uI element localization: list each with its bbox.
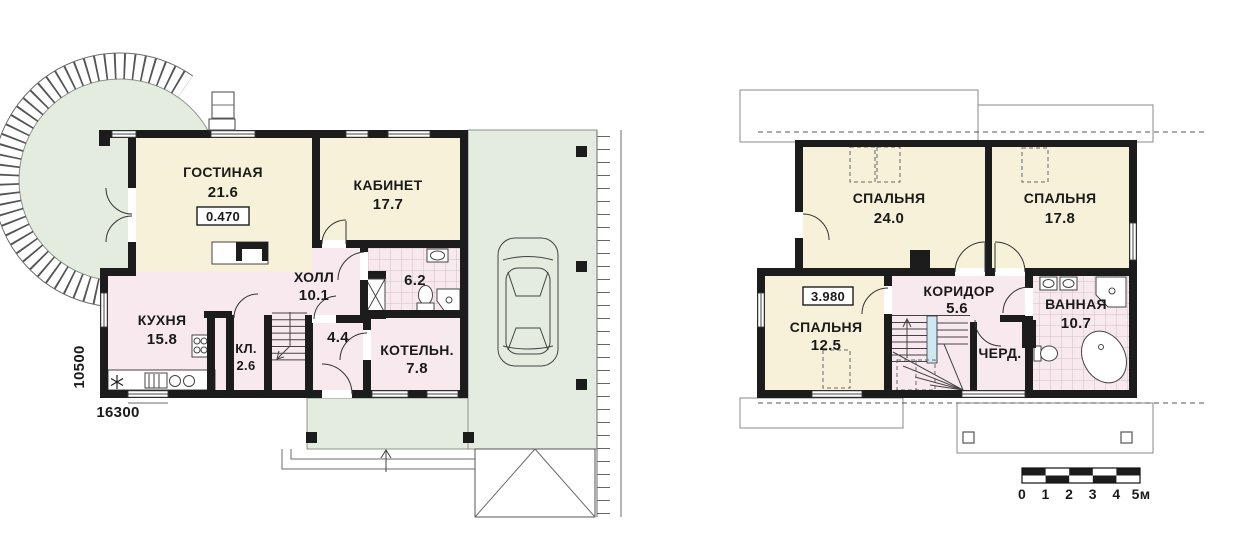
floor-plan-sheet: ГОСТИНАЯ 21.6 0.470 КАБИНЕТ 17.7 ХОЛЛ 10… <box>0 0 1250 560</box>
chimney-mark <box>1121 432 1132 443</box>
room-label-koridor: КОРИДОР <box>923 283 994 299</box>
room-label-spalnya3: СПАЛЬНЯ <box>790 319 863 335</box>
second-floor-plan: СПАЛЬНЯ 24.0 СПАЛЬНЯ 17.8 3.980 СПАЛЬНЯ … <box>740 90 1208 453</box>
scale-label-3: 3 <box>1089 486 1097 502</box>
room-label-vannaya: ВАННАЯ <box>1045 296 1107 312</box>
chimney-outline <box>209 119 235 130</box>
veranda-floor <box>307 398 468 449</box>
room-area-sanuzel: 6.2 <box>404 272 426 289</box>
room-area-holl: 10.1 <box>299 287 329 304</box>
room-label-spalnya2: СПАЛЬНЯ <box>1024 190 1097 206</box>
first-floor-plan: ГОСТИНАЯ 21.6 0.470 КАБИНЕТ 17.7 ХОЛЛ 10… <box>0 53 621 517</box>
chimney-mark <box>963 432 974 443</box>
veranda-column <box>463 432 474 443</box>
room-label-kabinet: КАБИНЕТ <box>354 177 423 193</box>
room-area-koridor: 5.6 <box>946 300 968 317</box>
carport-column <box>576 261 587 272</box>
scale-label-4: 4 <box>1112 486 1120 502</box>
carport-column <box>576 379 587 390</box>
terrace-door-gap <box>128 188 136 242</box>
scale-label-2: 2 <box>1065 486 1073 502</box>
toilet-icon <box>1034 346 1041 361</box>
level-mark-value: 0.470 <box>206 209 240 224</box>
room-area-vannaya: 10.7 <box>1061 315 1091 332</box>
scale-bar: 0 1 2 3 4 5м <box>1018 468 1150 502</box>
room-area-gostinaya: 21.6 <box>208 184 238 201</box>
level-mark-value: 3.980 <box>811 289 845 304</box>
balcony-door-gap <box>795 212 803 238</box>
entrance-door-gap <box>322 390 352 398</box>
room-area-kotelnaya: 7.8 <box>406 360 428 377</box>
scale-label-5: 5м <box>1132 486 1151 502</box>
floor-plans-drawing: ГОСТИНАЯ 21.6 0.470 КАБИНЕТ 17.7 ХОЛЛ 10… <box>0 0 1250 560</box>
room-label-kuhnya: КУХНЯ <box>138 312 187 328</box>
veranda-column <box>306 432 317 443</box>
kitchen-counter <box>108 370 215 390</box>
stove-icon <box>192 335 208 357</box>
scale-label-0: 0 <box>1018 486 1026 502</box>
room-label-kladovaya: КЛ. <box>235 341 257 356</box>
carport-floor <box>468 130 597 449</box>
room-label-spalnya1: СПАЛЬНЯ <box>853 190 926 206</box>
room-area-spalnya1: 24.0 <box>874 210 904 227</box>
room-label-kotelnaya: КОТЕЛЬН. <box>380 342 454 358</box>
scale-label-1: 1 <box>1042 486 1050 502</box>
room-area-tambur: 4.4 <box>327 329 349 346</box>
room-area-spalnya2: 17.8 <box>1045 210 1075 227</box>
room-area-kladovaya: 2.6 <box>237 358 256 373</box>
room-label-gostinaya: ГОСТИНАЯ <box>183 164 263 180</box>
room-label-cherdak: ЧЕРД. <box>979 345 1022 361</box>
room-area-spalnya3: 12.5 <box>811 337 841 354</box>
room-spalnya2-floor <box>992 147 1129 268</box>
room-area-kuhnya: 15.8 <box>147 331 177 348</box>
stair-well-divider <box>927 316 937 363</box>
room-area-kabinet: 17.7 <box>373 196 403 213</box>
room-spalnya1-floor <box>803 147 985 268</box>
dimension-horizontal: 16300 <box>96 404 139 421</box>
carport-column <box>576 146 587 157</box>
room-label-holl: ХОЛЛ <box>294 269 334 285</box>
dimension-vertical: 10500 <box>71 345 88 388</box>
side-steps-hatch <box>597 130 621 517</box>
fireplace <box>212 242 268 264</box>
garage-roof-outline <box>475 449 595 517</box>
